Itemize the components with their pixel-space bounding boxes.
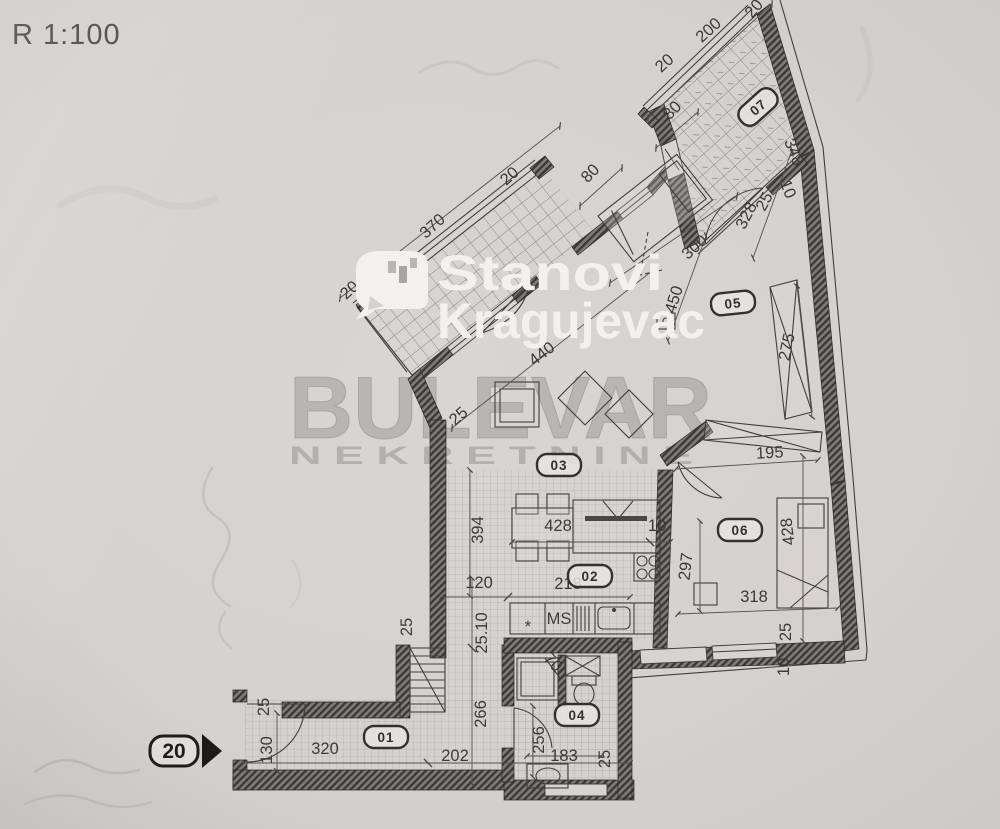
- dimension-label: 428: [777, 517, 798, 547]
- room-badge-03: 03: [537, 454, 581, 476]
- dimension-label: 370: [416, 210, 449, 242]
- dimension-label: *: [525, 618, 532, 636]
- room-badge-05: 05: [710, 290, 756, 316]
- floor-plan-drawing: BULEVAR N E K R E T N I N E: [0, 0, 1000, 829]
- dimension-label: 20: [652, 50, 678, 76]
- dimension-label: 428: [544, 517, 572, 535]
- svg-text:06: 06: [731, 523, 748, 538]
- dimension-label: MS: [547, 610, 572, 628]
- brand-logo-icon: [356, 251, 428, 319]
- apartment-number: 20: [162, 740, 185, 763]
- bed-room06: [777, 498, 828, 608]
- dimension-label: 183: [550, 747, 578, 765]
- svg-text:03: 03: [550, 458, 567, 473]
- dimension-label: 266: [472, 700, 490, 728]
- brand-line2: Kragujevac: [437, 293, 705, 349]
- svg-text:01: 01: [377, 730, 394, 745]
- dimension-label: 20: [497, 163, 523, 189]
- dimension-label: 195: [756, 443, 784, 462]
- scanned-floor-plan-photo: BULEVAR N E K R E T N I N E: [0, 0, 1000, 829]
- dimension-label: 25: [596, 750, 614, 768]
- dimension-label: 320: [311, 740, 339, 758]
- dimension-label: 297: [676, 552, 697, 581]
- nightstand-06: [694, 583, 717, 605]
- room-badge-01: 01: [364, 726, 408, 748]
- bathroom-window: [545, 784, 607, 796]
- dimension-label: 120: [465, 574, 493, 592]
- dimension-label: 25: [255, 698, 273, 716]
- dimension-label: 25: [777, 623, 795, 641]
- dimension-label: 80: [578, 161, 604, 187]
- entrance-arrow-icon: [202, 734, 222, 768]
- watermark-agency-subtitle: N E K R E T N I N E: [289, 442, 693, 470]
- dimension-label: 256: [530, 726, 548, 754]
- dimension-label: 25.10: [473, 612, 491, 653]
- dimension-label: 200: [692, 14, 725, 46]
- svg-text:05: 05: [724, 295, 743, 312]
- dimension-label: 10: [648, 517, 666, 535]
- room-badge-04: 04: [555, 704, 599, 726]
- dimension-label: 25: [398, 618, 416, 636]
- dimension-label: 130: [258, 736, 276, 764]
- svg-text:04: 04: [568, 708, 585, 723]
- room06-window-left: [640, 647, 707, 664]
- dimension-label: 10: [775, 658, 793, 676]
- svg-text:02: 02: [581, 569, 598, 584]
- dimension-label: 202: [441, 747, 469, 765]
- dimension-label: 318: [740, 588, 768, 606]
- dimension-label: 394: [469, 516, 487, 544]
- room-badge-02: 02: [568, 565, 612, 587]
- scale-label: R 1:100: [12, 19, 121, 51]
- apartment-number-marker: 20: [150, 734, 222, 768]
- room-badge-06: 06: [718, 519, 762, 541]
